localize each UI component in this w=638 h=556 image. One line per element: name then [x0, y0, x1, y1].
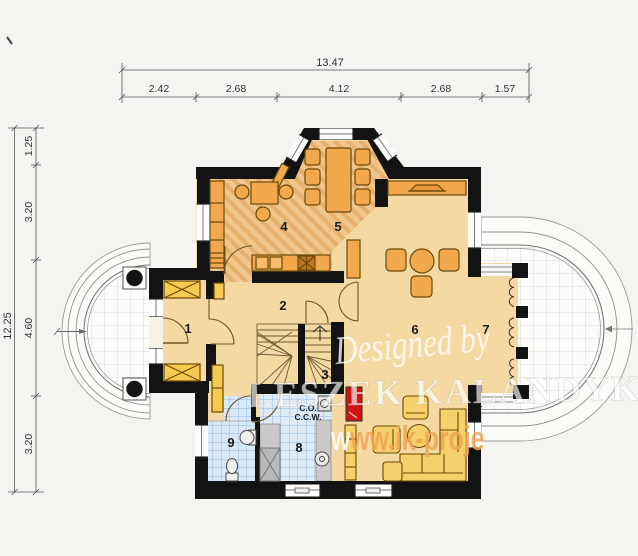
svg-text:3.20: 3.20 [23, 434, 35, 455]
svg-text:LESZEK KALANDYK: LESZEK KALANDYK [247, 368, 638, 415]
svg-text:1: 1 [184, 321, 191, 336]
svg-text:2.68: 2.68 [226, 83, 247, 95]
svg-text:2.68: 2.68 [431, 83, 452, 95]
svg-text:4.12: 4.12 [329, 83, 350, 95]
svg-text:9: 9 [227, 435, 234, 450]
svg-text:4.60: 4.60 [23, 318, 35, 339]
svg-text:1.25: 1.25 [23, 136, 35, 157]
svg-text:13.47: 13.47 [316, 57, 344, 69]
svg-text:1.57: 1.57 [495, 83, 516, 95]
svg-text:w: w [330, 420, 351, 458]
svg-text:2.42: 2.42 [149, 83, 170, 95]
svg-text:3.20: 3.20 [23, 202, 35, 223]
svg-text:www.ik-proje: www.ik-proje [330, 420, 484, 458]
svg-text:8: 8 [295, 440, 302, 455]
svg-text:12.25: 12.25 [2, 312, 14, 340]
svg-text:2: 2 [279, 298, 286, 313]
svg-text:4: 4 [280, 219, 288, 234]
svg-text:5: 5 [334, 219, 341, 234]
